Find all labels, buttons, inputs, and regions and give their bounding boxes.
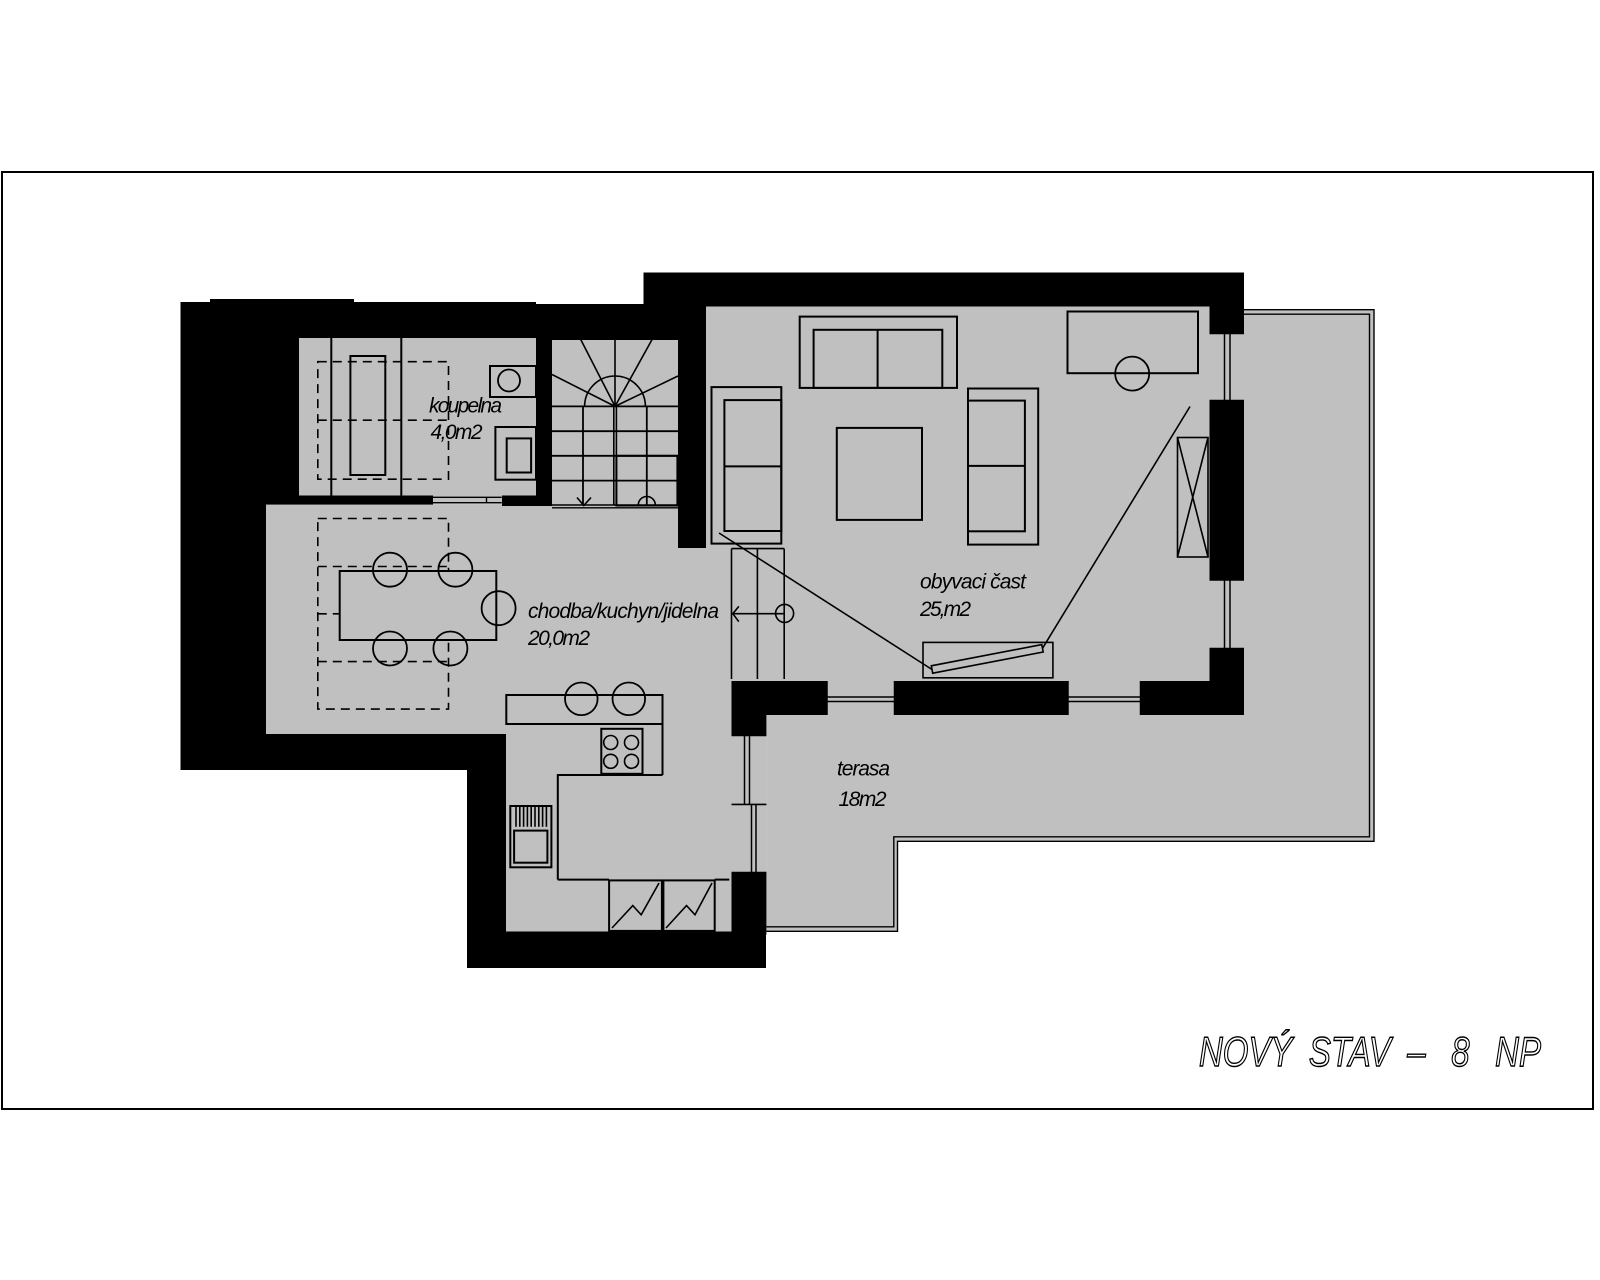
svg-text:NOVÝ STAV – 8 NP: NOVÝ STAV – 8 NP bbox=[1199, 1028, 1541, 1075]
svg-text:25,m2: 25,m2 bbox=[919, 598, 971, 621]
svg-text:20,0m2: 20,0m2 bbox=[527, 627, 590, 650]
svg-text:koupelna: koupelna bbox=[429, 395, 502, 418]
svg-text:terasa: terasa bbox=[837, 758, 890, 781]
svg-text:4,0m2: 4,0m2 bbox=[431, 421, 483, 444]
svg-text:obyvaci čast: obyvaci čast bbox=[920, 571, 1027, 594]
svg-text:chodba/kuchyn/jidelna: chodba/kuchyn/jidelna bbox=[528, 600, 719, 623]
svg-text:18m2: 18m2 bbox=[839, 788, 887, 811]
